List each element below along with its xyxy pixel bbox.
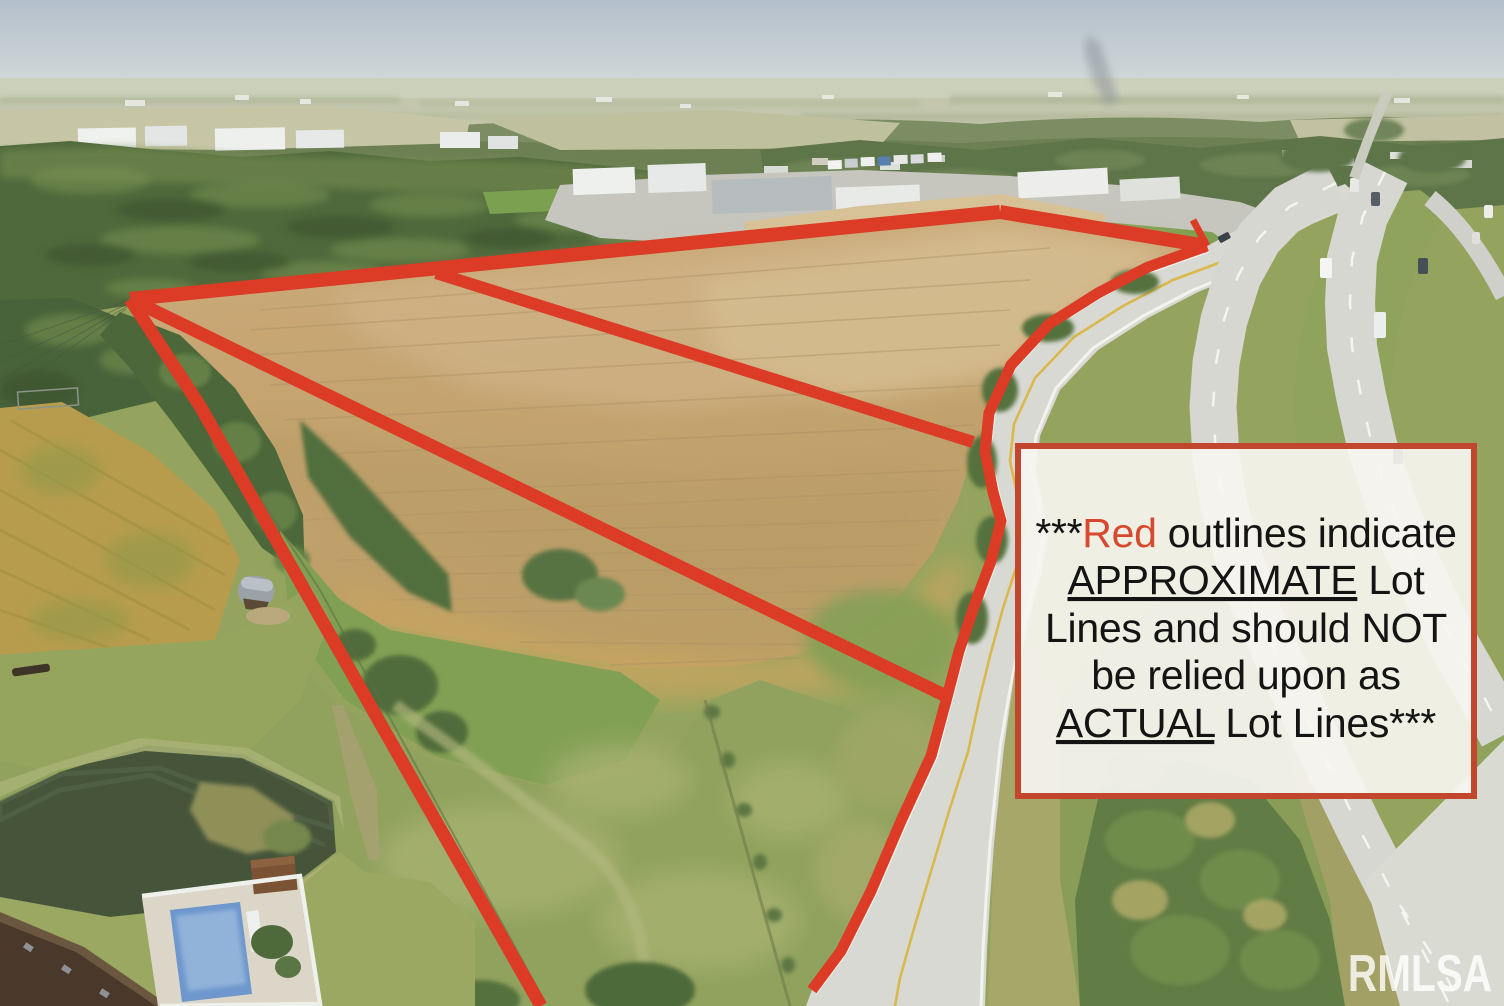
svg-text:ACTUAL Lot Lines***: ACTUAL Lot Lines*** <box>1056 700 1437 746</box>
svg-text:be relied upon as: be relied upon as <box>1091 652 1400 698</box>
svg-text:***Red outlines indicate: ***Red outlines indicate <box>1035 510 1456 556</box>
svg-text:Lines and should NOT: Lines and should NOT <box>1045 605 1447 651</box>
svg-text:RMLSA: RMLSA <box>1348 944 1492 1002</box>
svg-text:APPROXIMATE Lot: APPROXIMATE Lot <box>1067 557 1425 603</box>
